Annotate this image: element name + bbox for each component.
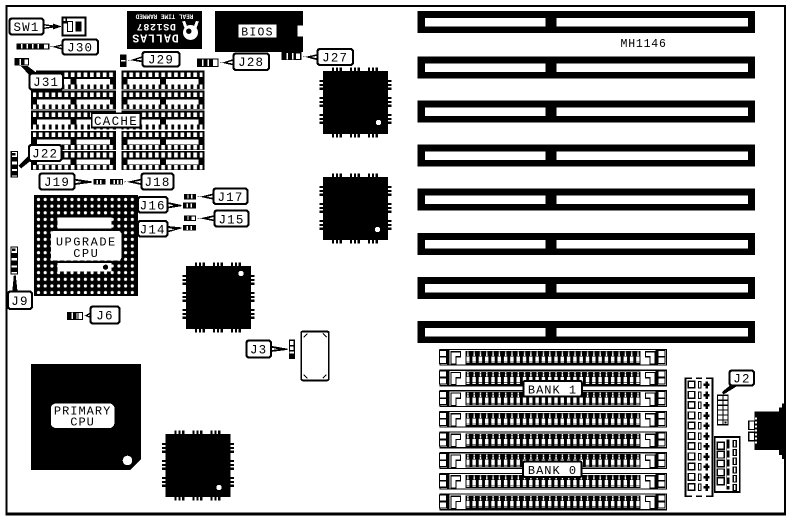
svg-text:CACHE: CACHE: [94, 115, 138, 129]
svg-text:J16: J16: [140, 200, 166, 214]
svg-text:BANK 1: BANK 1: [528, 384, 577, 398]
svg-text:MH1146: MH1146: [621, 38, 667, 51]
svg-text:J31: J31: [33, 76, 59, 90]
svg-text:J29: J29: [148, 54, 174, 68]
svg-text:J15: J15: [218, 213, 244, 227]
svg-text:J17: J17: [217, 191, 243, 205]
svg-text:J14: J14: [140, 224, 166, 238]
svg-text:J27: J27: [322, 52, 348, 66]
svg-text:J9: J9: [11, 295, 28, 309]
svg-text:CPU: CPU: [70, 416, 95, 430]
svg-text:CPU: CPU: [73, 247, 99, 261]
svg-text:DALLAS: DALLAS: [131, 31, 178, 44]
svg-text:DS1287: DS1287: [136, 20, 176, 31]
svg-text:J28: J28: [238, 56, 264, 70]
svg-text:J30: J30: [67, 42, 93, 56]
svg-text:BIOS: BIOS: [241, 27, 273, 40]
svg-text:BANK 0: BANK 0: [528, 464, 577, 478]
svg-text:J19: J19: [44, 176, 70, 190]
svg-text:J2: J2: [733, 373, 750, 387]
svg-text:J18: J18: [144, 176, 170, 190]
svg-text:J3: J3: [250, 344, 267, 358]
svg-text:REAL TIME RAMMED: REAL TIME RAMMED: [135, 13, 193, 20]
svg-text:J6: J6: [96, 310, 113, 324]
svg-text:J22: J22: [32, 148, 58, 162]
svg-text:SW1: SW1: [13, 21, 39, 35]
